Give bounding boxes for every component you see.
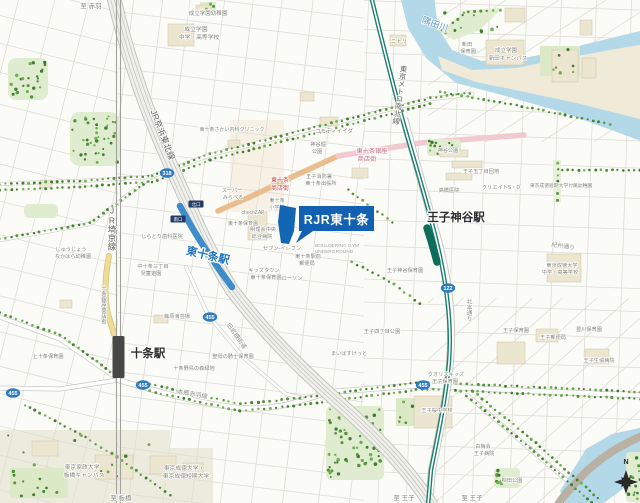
map-label: 東十条保育園	[228, 220, 258, 227]
building	[352, 168, 368, 178]
building	[580, 20, 592, 35]
map-label: ローソン	[282, 276, 303, 282]
map-label: 高橋医院	[439, 186, 461, 194]
map-label: 新田キャンパス	[489, 54, 528, 62]
map-label: 北本通り	[465, 298, 472, 322]
map-label: 成立学園幼稚園	[189, 9, 228, 17]
svg-text:455: 455	[138, 383, 147, 389]
building	[32, 441, 58, 456]
map-label: 王子桜中学校	[421, 406, 452, 414]
map-label: なかはら幼稚園	[55, 252, 91, 260]
map-label: 公園	[312, 148, 322, 155]
map-label: BOULDERING GYM	[315, 243, 359, 249]
compass-north-label: N	[623, 459, 628, 466]
map-label: 東十条	[271, 176, 289, 184]
svg-text:122: 122	[443, 286, 452, 292]
station-label: 十条駅	[131, 346, 166, 360]
map-label: 商店街	[358, 155, 377, 163]
map-label: スーパー	[222, 187, 243, 194]
map-label: 商店街	[271, 184, 289, 192]
map-label: 東京成徳大学	[546, 261, 577, 269]
map-label: まいばすけっと	[331, 349, 367, 357]
map-label: 東京成徳大学・	[164, 464, 205, 472]
svg-text:318: 318	[162, 171, 171, 177]
building	[60, 300, 72, 308]
map-label: 至 板橋	[110, 493, 132, 502]
map-label: 王子保育園	[432, 377, 458, 385]
map-label: 中十条三丁目	[137, 262, 168, 270]
map-label: 神谷堀	[310, 140, 326, 148]
map-label: UNDERGROUND	[315, 249, 354, 255]
svg-text:455: 455	[418, 383, 427, 389]
map-label: 上十条保育園	[32, 352, 63, 360]
station-exit-tag: 北口	[189, 201, 204, 208]
map-label: 郵便局	[299, 259, 315, 267]
route-shield: 455	[203, 312, 217, 322]
area-map-image: 318455455455455122北口南口 至 赤羽成立学園幼稚園成立学園中学…	[0, 0, 640, 503]
map-label: 児童遊園	[141, 269, 162, 277]
map-label: じゅうじょう	[55, 246, 86, 253]
map-label: 王子保育園	[503, 326, 529, 334]
map-label: 王子生協病院	[583, 356, 615, 364]
map-label: 板橋キャンパス	[64, 471, 105, 479]
svg-text:南口: 南口	[173, 216, 183, 223]
building	[497, 342, 525, 364]
map-label: 柳田公園	[502, 476, 523, 484]
map-label: 十条野鳥の森緑地	[173, 364, 215, 372]
map-label: しらとり歯科医院	[141, 232, 183, 240]
map-label: 至 王子	[393, 494, 415, 502]
building	[505, 8, 525, 22]
svg-text:455: 455	[205, 315, 214, 321]
map-label: 総合病院	[252, 232, 274, 240]
map-label: ニトリ	[391, 38, 408, 45]
building	[300, 92, 314, 101]
map-label: chocoZAP	[241, 210, 265, 216]
map-label: 東京成徳短期大学付属幼稚園	[530, 182, 593, 189]
map-label: 王子郵便局	[540, 333, 566, 341]
map-label: 東十条さかい内科クリニック	[199, 126, 264, 133]
jujo-station-marker	[113, 336, 125, 378]
map-label: 東十条出張所	[305, 179, 336, 187]
map-label: 東十条銀座	[357, 147, 388, 155]
map-label: 王子消防署	[306, 172, 332, 180]
map-label: 東京家政大学	[65, 463, 100, 471]
map-label: 成立学園	[495, 46, 518, 54]
map-label: キッズタウン	[248, 266, 279, 274]
building	[582, 58, 596, 78]
map-label: 東十条保育園	[250, 273, 281, 281]
map-canvas: 318455455455455122北口南口 至 赤羽成立学園幼稚園成立学園中学…	[0, 0, 640, 503]
map-label: 中学・高等学校	[542, 268, 578, 276]
map-label: 王子五丁目団地	[463, 167, 499, 175]
map-label: クリエイトS・D	[482, 184, 521, 191]
map-label: 至 王子	[461, 494, 483, 502]
map-label: 篠原演芸場	[164, 312, 190, 320]
route-shield: 318	[160, 168, 174, 178]
map-label: 王子神谷保育園	[387, 266, 423, 274]
building	[452, 161, 482, 168]
route-shield: 455	[6, 388, 20, 398]
map-label: 神谷公園	[438, 146, 459, 154]
route-shield: 455	[136, 380, 150, 390]
map-label: クオリスキッズ	[428, 370, 464, 378]
svg-text:北口: 北口	[191, 201, 201, 208]
map-label: 新田	[462, 40, 472, 48]
map-label: 王子病院	[474, 449, 496, 457]
map-label: コモディイイダ	[315, 127, 353, 135]
map-label: 王子四丁目公園	[364, 328, 400, 335]
map-label: 聖母の騎士保育園	[212, 352, 254, 360]
map-label: 至 赤羽	[80, 2, 101, 10]
station-exit-tag: 南口	[171, 216, 186, 223]
map-label: 明理会中央	[250, 225, 277, 233]
route-shield: 122	[441, 283, 455, 293]
map-label: 東十条	[269, 196, 285, 204]
railway-label: JR埼京線	[107, 205, 117, 251]
map-label: 中学・高等学校	[179, 33, 220, 41]
map-label: 白梅会	[475, 442, 491, 450]
map-label: セブン-イレブン	[263, 244, 301, 252]
route-shield: 455	[416, 380, 430, 390]
map-label: 十条銀座商店街	[100, 285, 107, 326]
map-label: 成立学園	[184, 25, 207, 33]
map-label: 保育園	[460, 47, 476, 55]
callout-label: RJR東十条	[304, 212, 370, 227]
map-label: 東京成徳短期大学	[163, 472, 210, 480]
map-label: 豊川保育園	[576, 325, 602, 333]
station-label: 王子神谷駅	[427, 210, 485, 224]
map-label: みらべる	[223, 194, 244, 201]
svg-text:455: 455	[8, 391, 17, 397]
